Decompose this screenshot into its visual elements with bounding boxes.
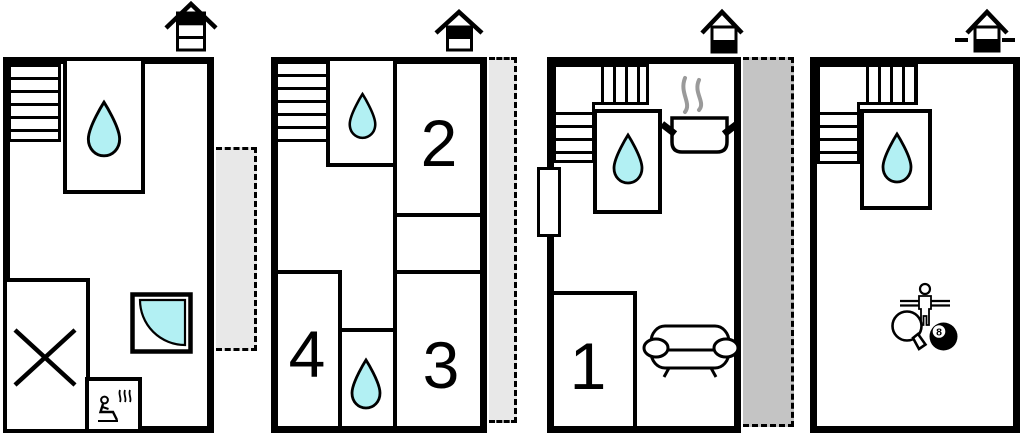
floor-level-icon-ground-floor [698, 9, 746, 53]
room-number-4: 4 [289, 321, 326, 387]
staircase-lower-run [553, 102, 595, 163]
room-number-3: 3 [423, 332, 460, 398]
sauna-icon [94, 387, 134, 427]
sofa-icon [643, 320, 739, 380]
balcony-area-floor1 [216, 147, 257, 351]
balcony-area-floor2 [489, 57, 517, 423]
floor-level-icon-upper-floor [433, 6, 485, 52]
wall [393, 57, 397, 433]
staircase [278, 64, 329, 142]
game-room-icons: 8 [886, 278, 964, 356]
staircase [8, 64, 61, 142]
staircase-upper-run [592, 64, 649, 105]
floor-plans-canvas: 2 3 4 1 [0, 0, 1024, 436]
floor-level-icon-basement [952, 9, 1016, 53]
water-drop-icon [611, 130, 645, 188]
room-number-2: 2 [421, 110, 458, 176]
eight-ball-icon: 8 [930, 323, 958, 351]
entrance-door [537, 167, 561, 237]
wall [397, 213, 487, 217]
stair-landing [817, 64, 860, 105]
wall [547, 291, 637, 295]
water-drop-icon [349, 355, 383, 413]
room-number-1: 1 [570, 333, 607, 399]
eight-ball-number: 8 [936, 326, 942, 338]
staircase-lower-run [817, 102, 860, 164]
floor-level-icon-top-floor [164, 1, 218, 53]
kitchen-pot-icon [658, 70, 740, 156]
shower-icon [130, 292, 193, 354]
wall [271, 270, 342, 274]
staircase-upper-run [857, 64, 918, 105]
stair-landing [553, 64, 595, 105]
wall [338, 270, 342, 433]
cross-icon [10, 320, 82, 392]
water-drop-icon [85, 99, 123, 159]
water-drop-icon [347, 90, 378, 142]
wall [633, 291, 637, 433]
wall [397, 270, 487, 274]
water-drop-icon [880, 130, 914, 186]
wall [338, 328, 397, 332]
terrace-area-floor3 [743, 57, 794, 427]
